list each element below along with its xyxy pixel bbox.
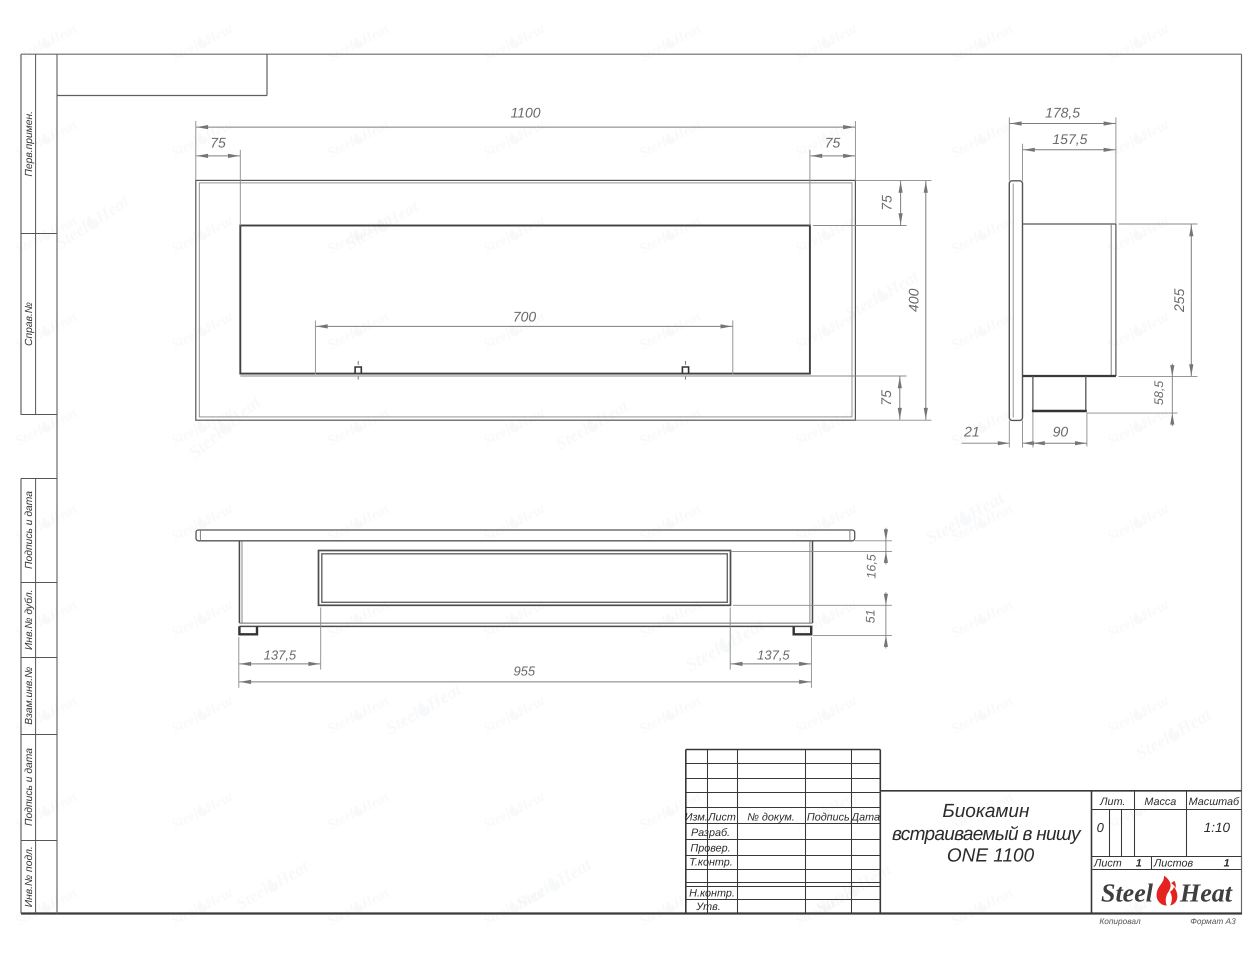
svg-text:Т.контр.: Т.контр. <box>689 857 733 869</box>
svg-text:1: 1 <box>1224 858 1230 870</box>
svg-text:Справ.№: Справ.№ <box>24 302 35 346</box>
svg-text:ONE 1100: ONE 1100 <box>947 846 1035 867</box>
svg-text:700: 700 <box>513 309 537 325</box>
svg-text:178,5: 178,5 <box>1045 104 1080 120</box>
svg-text:58,5: 58,5 <box>1152 381 1166 405</box>
svg-text:Перв.примен.: Перв.примен. <box>24 111 35 177</box>
svg-text:Провер.: Провер. <box>690 843 730 855</box>
svg-text:Биокамин: Биокамин <box>942 801 1030 822</box>
svg-text:Heat: Heat <box>1179 879 1233 908</box>
svg-text:Разраб.: Разраб. <box>691 827 730 839</box>
svg-text:51: 51 <box>864 609 878 623</box>
svg-text:Инв.№ подл.: Инв.№ подл. <box>24 846 35 907</box>
svg-text:Лист: Лист <box>707 812 736 824</box>
svg-text:Копировал: Копировал <box>1099 916 1141 926</box>
svg-text:Дата: Дата <box>851 812 880 824</box>
svg-text:№ докум.: № докум. <box>747 812 795 824</box>
svg-text:Лит.: Лит. <box>1099 796 1125 808</box>
svg-text:Инв.№ дубл.: Инв.№ дубл. <box>24 589 35 649</box>
svg-text:157,5: 157,5 <box>1052 131 1087 147</box>
svg-text:955: 955 <box>513 663 535 678</box>
svg-text:1:10: 1:10 <box>1204 820 1231 835</box>
svg-text:400: 400 <box>906 288 922 312</box>
svg-text:Н.контр.: Н.контр. <box>689 888 735 900</box>
svg-text:1100: 1100 <box>510 105 540 121</box>
svg-text:137,5: 137,5 <box>264 648 297 663</box>
svg-text:21: 21 <box>963 424 980 440</box>
svg-text:137,5: 137,5 <box>757 648 790 663</box>
svg-text:Подпись: Подпись <box>807 812 850 824</box>
svg-text:75: 75 <box>878 390 894 406</box>
svg-text:16,5: 16,5 <box>865 554 879 578</box>
svg-text:255: 255 <box>1171 288 1187 313</box>
svg-text:Steel: Steel <box>1101 879 1154 908</box>
svg-text:Листов: Листов <box>1153 858 1194 870</box>
svg-text:Изм.: Изм. <box>685 812 708 824</box>
svg-text:встраиваемый в нишу: встраиваемый в нишу <box>892 824 1082 845</box>
svg-text:Взам.инв.№: Взам.инв.№ <box>24 667 35 725</box>
svg-text:Масса: Масса <box>1144 796 1176 808</box>
svg-text:Подпись и дата: Подпись и дата <box>24 748 35 826</box>
svg-text:75: 75 <box>210 135 226 151</box>
svg-text:90: 90 <box>1053 424 1069 440</box>
svg-text:Утв.: Утв. <box>695 901 721 913</box>
svg-text:1: 1 <box>1136 858 1142 870</box>
svg-text:75: 75 <box>825 135 841 151</box>
svg-text:Лист: Лист <box>1093 858 1122 870</box>
svg-text:Подпись и дата: Подпись и дата <box>24 491 35 569</box>
svg-text:Масштаб: Масштаб <box>1189 796 1240 808</box>
svg-text:0: 0 <box>1097 820 1105 835</box>
svg-text:Формат А3: Формат А3 <box>1190 916 1236 926</box>
svg-text:75: 75 <box>878 195 894 211</box>
